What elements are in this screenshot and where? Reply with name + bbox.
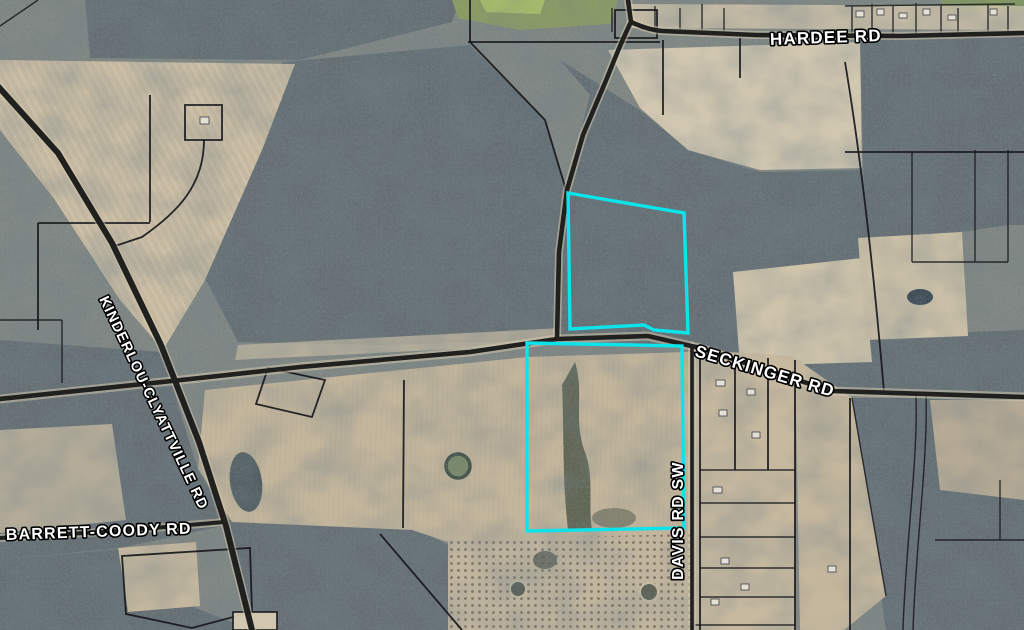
road-label-hardee: HARDEE RD bbox=[770, 26, 882, 49]
road-label-davis: DAVIS RD SW bbox=[670, 461, 687, 580]
map-canvas[interactable]: HARDEE RD SECKINGER RD KINDERLOU-CLYATTV… bbox=[0, 0, 1024, 630]
map-viewport[interactable]: HARDEE RD SECKINGER RD KINDERLOU-CLYATTV… bbox=[0, 0, 1024, 630]
